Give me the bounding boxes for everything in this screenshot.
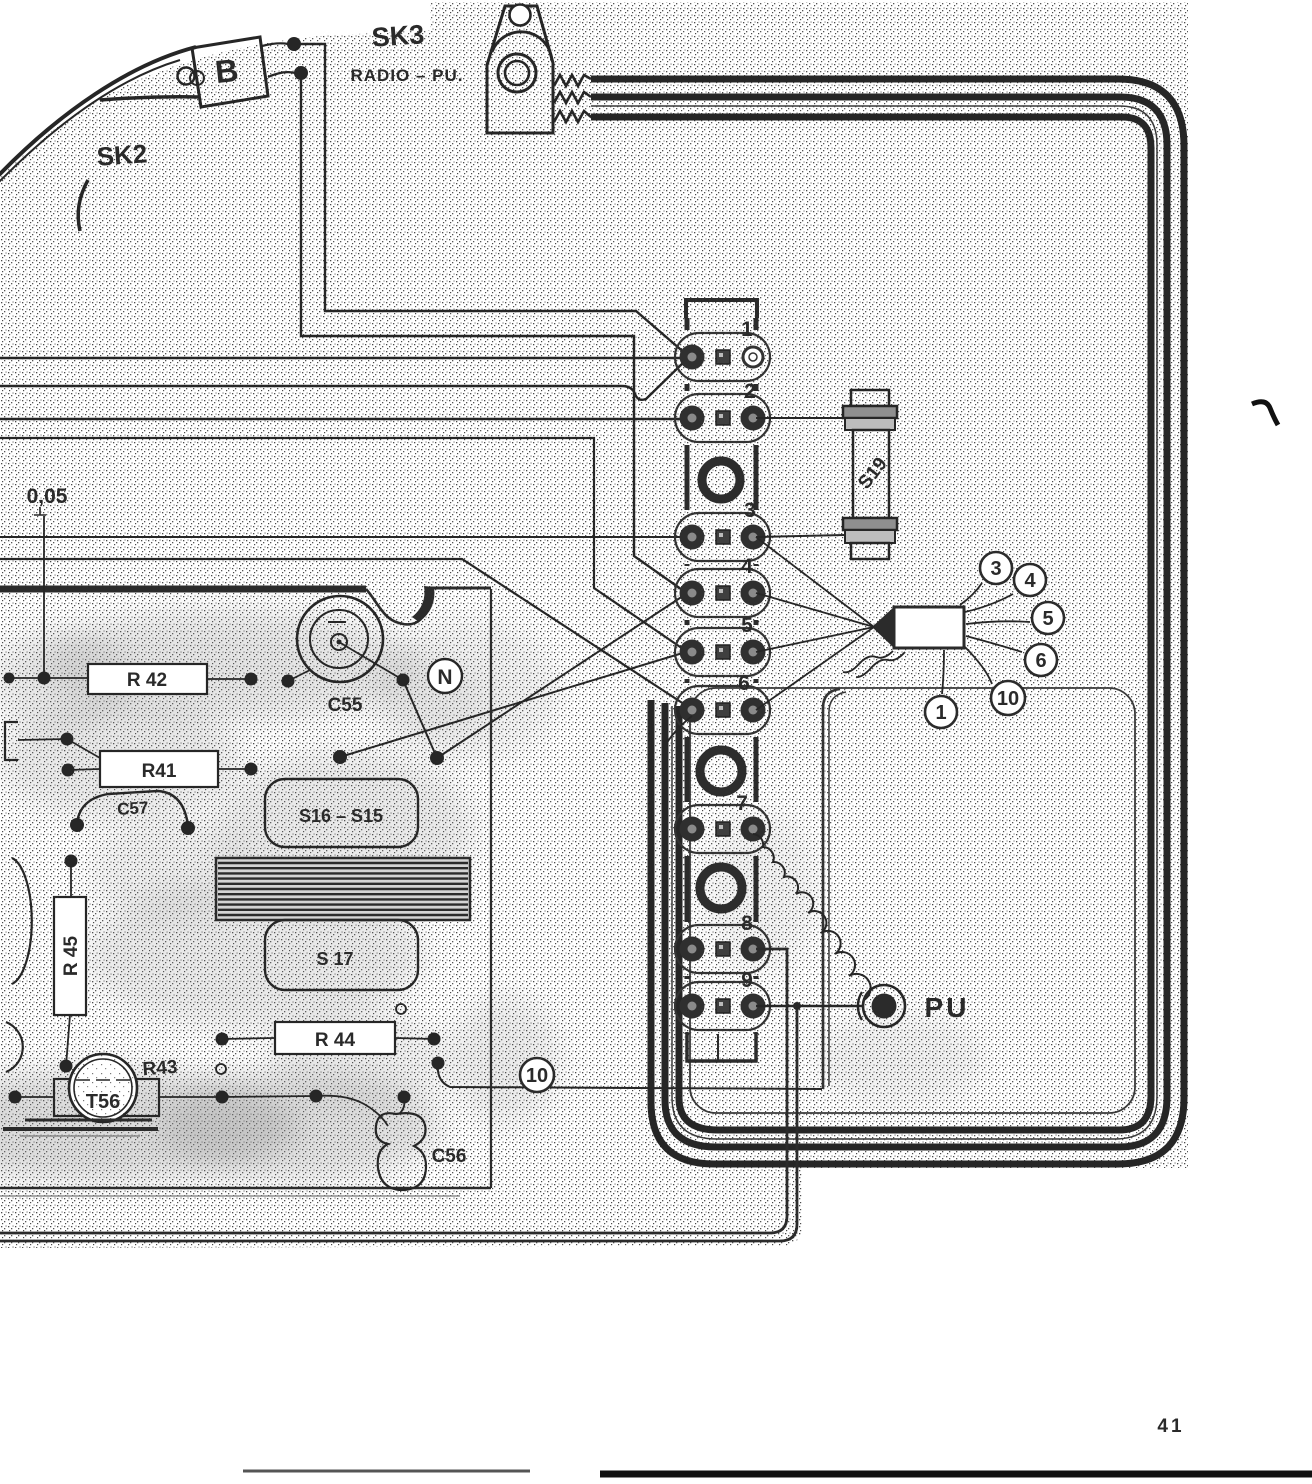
svg-text:5: 5 [1042, 608, 1053, 630]
svg-text:9: 9 [741, 969, 753, 992]
svg-text:C55: C55 [328, 695, 363, 716]
svg-text:S16 – S15: S16 – S15 [299, 806, 383, 826]
svg-text:R 44: R 44 [315, 1030, 356, 1051]
svg-text:RADIO – PU.: RADIO – PU. [350, 66, 463, 85]
svg-text:41: 41 [1157, 1416, 1184, 1437]
svg-text:T56: T56 [86, 1091, 120, 1113]
svg-text:0,05: 0,05 [27, 485, 68, 508]
svg-text:SK2: SK2 [96, 138, 149, 171]
svg-text:R43: R43 [142, 1057, 178, 1080]
svg-text:6: 6 [738, 672, 750, 695]
svg-text:1: 1 [935, 702, 946, 724]
svg-text:4: 4 [741, 555, 753, 578]
svg-text:3: 3 [990, 558, 1001, 580]
svg-text:10: 10 [526, 1065, 548, 1087]
svg-text:2: 2 [744, 380, 756, 403]
svg-text:C56: C56 [432, 1146, 467, 1167]
svg-text:R 45: R 45 [61, 936, 82, 977]
svg-text:PU: PU [925, 992, 970, 1023]
svg-text:7: 7 [736, 792, 748, 815]
svg-text:5: 5 [741, 614, 753, 637]
svg-text:4: 4 [1024, 570, 1036, 592]
svg-text:S 17: S 17 [316, 949, 353, 969]
svg-text:B: B [213, 52, 240, 90]
svg-text:10: 10 [997, 688, 1019, 710]
svg-text:R 42: R 42 [127, 670, 167, 691]
svg-text:SK3: SK3 [371, 19, 425, 53]
svg-text:3: 3 [744, 499, 756, 522]
svg-text:R41: R41 [142, 761, 177, 782]
svg-text:N: N [437, 666, 452, 689]
svg-text:1: 1 [741, 318, 753, 341]
svg-text:8: 8 [741, 912, 753, 935]
svg-text:6: 6 [1035, 650, 1046, 672]
svg-text:C57: C57 [117, 798, 149, 819]
